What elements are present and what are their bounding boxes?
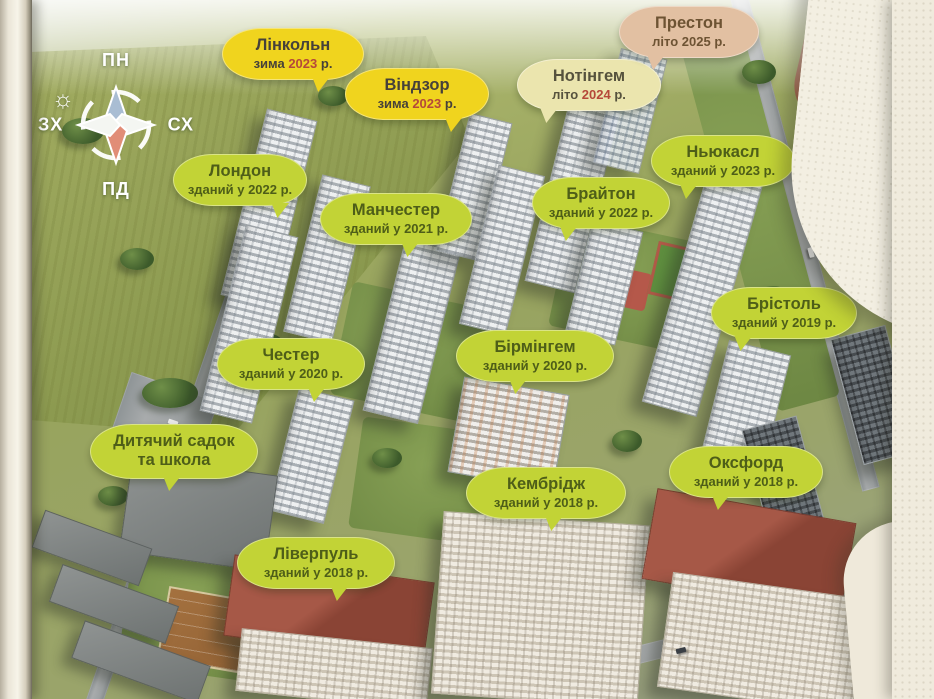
compass-west-label: ЗХ bbox=[38, 115, 63, 136]
callout-liverpool: Ліверпуль зданий у 2018 р. bbox=[237, 537, 395, 589]
tree bbox=[98, 486, 128, 506]
tree bbox=[120, 248, 154, 270]
callout-manchester: Манчестер зданий у 2021 р. bbox=[320, 193, 472, 245]
callout-lincoln: Лінкольн зима 2023 р. bbox=[222, 28, 364, 80]
page-edge-right bbox=[892, 0, 934, 699]
building-chester bbox=[268, 387, 354, 524]
tree bbox=[612, 430, 642, 452]
callout-windsor: Віндзор зима 2023 р. bbox=[345, 68, 489, 120]
callout-tail bbox=[678, 184, 698, 199]
sun-icon: ☼ bbox=[52, 88, 74, 112]
callout-london: Лондон зданий у 2022 р. bbox=[173, 154, 307, 206]
tree bbox=[372, 448, 402, 468]
callout-nottingham: Нотінгем літо 2024 р. bbox=[517, 59, 661, 111]
callout-kindergarten-school: Дитячий садок та школа bbox=[90, 424, 258, 479]
callout-oxford: Оксфорд зданий у 2018 р. bbox=[669, 446, 823, 498]
callout-brighton: Брайтон зданий у 2022 р. bbox=[532, 177, 670, 229]
compass-rose: ☼ ПН СХ ПД ЗХ bbox=[38, 50, 194, 200]
masterplan-photo: ☼ ПН СХ ПД ЗХ Лінкольн зима 2023 р. Вінд… bbox=[0, 0, 934, 699]
callout-bristol: Брістоль зданий у 2019 р. bbox=[711, 287, 857, 339]
page-edge-left bbox=[0, 0, 32, 699]
callout-newcastle: Ньюкасл зданий у 2023 р. bbox=[651, 135, 795, 187]
compass-star-icon bbox=[74, 83, 158, 167]
callout-cambridge: Кембрідж зданий у 2018 р. bbox=[466, 467, 626, 519]
compass-east-label: СХ bbox=[168, 115, 194, 136]
callout-preston: Престон літо 2025 р. bbox=[619, 6, 759, 58]
callout-tail bbox=[538, 108, 558, 123]
tree bbox=[318, 86, 348, 106]
compass-south-label: ПД bbox=[102, 179, 130, 200]
callout-chester: Честер зданий у 2020 р. bbox=[217, 338, 365, 390]
callout-birmingham: Бірмінгем зданий у 2020 р. bbox=[456, 330, 614, 382]
compass-north-label: ПН bbox=[102, 50, 130, 71]
building-cambridge bbox=[431, 511, 650, 699]
tree bbox=[742, 60, 776, 84]
tree bbox=[142, 378, 198, 408]
